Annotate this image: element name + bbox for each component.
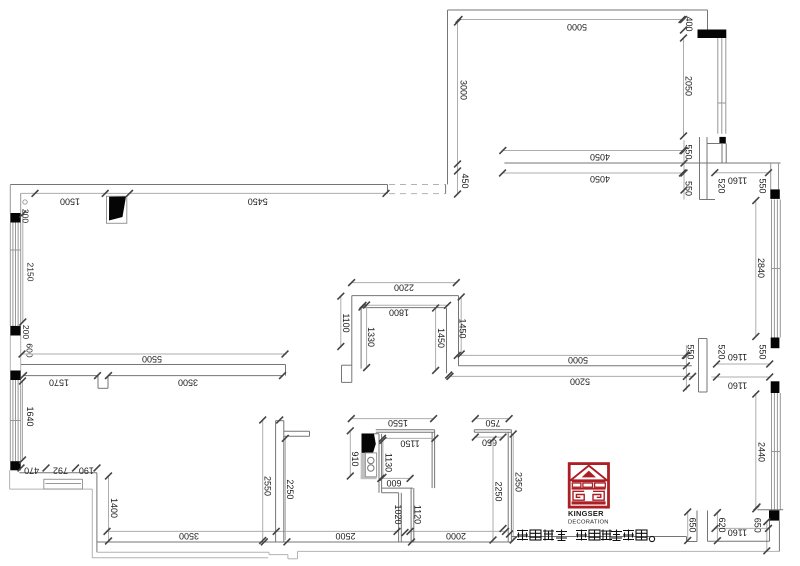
svg-text:620: 620 — [717, 517, 727, 532]
svg-text:’: ’ — [606, 506, 608, 515]
svg-text:1500: 1500 — [60, 197, 80, 207]
svg-text:600: 600 — [25, 343, 35, 357]
svg-text:1100: 1100 — [341, 313, 351, 332]
svg-text:1020: 1020 — [393, 504, 403, 524]
svg-text:2250: 2250 — [285, 479, 295, 499]
svg-text:DECORATION: DECORATION — [568, 519, 609, 525]
svg-text:1570: 1570 — [49, 378, 69, 388]
svg-text:2200: 2200 — [394, 283, 414, 293]
svg-text:5450: 5450 — [248, 197, 268, 207]
svg-text:520: 520 — [717, 344, 727, 359]
svg-text:1160: 1160 — [728, 380, 747, 390]
svg-text:2550: 2550 — [263, 476, 273, 496]
svg-text:650: 650 — [753, 518, 763, 533]
svg-text:4050: 4050 — [590, 174, 610, 184]
svg-text:1130: 1130 — [384, 453, 394, 472]
svg-text:5000: 5000 — [567, 22, 587, 32]
svg-text:200: 200 — [21, 325, 31, 339]
svg-text:400: 400 — [684, 16, 694, 31]
svg-text:650: 650 — [688, 517, 698, 532]
svg-text:5000: 5000 — [568, 355, 588, 365]
svg-text:550: 550 — [758, 344, 768, 359]
svg-text:2250: 2250 — [494, 481, 504, 501]
svg-text:1120: 1120 — [413, 505, 423, 524]
svg-text:3500: 3500 — [179, 531, 199, 541]
svg-text:550: 550 — [684, 144, 694, 159]
svg-text:550: 550 — [686, 344, 696, 359]
svg-text:2050: 2050 — [683, 76, 693, 96]
svg-text:5200: 5200 — [570, 377, 590, 387]
svg-text:550: 550 — [758, 178, 768, 193]
svg-text:2000: 2000 — [446, 531, 466, 541]
svg-text:1640: 1640 — [25, 406, 35, 426]
svg-text:520: 520 — [717, 178, 727, 193]
svg-text:450: 450 — [460, 173, 470, 188]
svg-text:1800: 1800 — [389, 308, 409, 318]
svg-text:1160: 1160 — [728, 176, 747, 186]
svg-text:1160: 1160 — [728, 352, 747, 362]
svg-text:470: 470 — [24, 466, 39, 476]
svg-text:1450: 1450 — [457, 318, 467, 338]
svg-text:750: 750 — [485, 418, 500, 428]
svg-text:5500: 5500 — [142, 354, 162, 364]
svg-text:3000: 3000 — [459, 80, 469, 100]
svg-text:1160: 1160 — [728, 528, 747, 538]
svg-text:KINGSER: KINGSER — [568, 509, 604, 518]
svg-text:2840: 2840 — [756, 258, 766, 278]
svg-text:2350: 2350 — [514, 472, 524, 492]
svg-text:1330: 1330 — [366, 327, 376, 347]
svg-text:4050: 4050 — [590, 152, 610, 162]
svg-text:600: 600 — [386, 478, 401, 488]
svg-text:2150: 2150 — [25, 263, 35, 282]
svg-text:1550: 1550 — [388, 418, 408, 428]
svg-text:910: 910 — [350, 451, 360, 466]
svg-text:2500: 2500 — [335, 531, 355, 541]
svg-text:792: 792 — [53, 466, 68, 476]
svg-text:1400: 1400 — [109, 498, 119, 518]
svg-text:190: 190 — [79, 466, 94, 476]
svg-text:1150: 1150 — [400, 439, 419, 449]
svg-text:2440: 2440 — [757, 442, 767, 462]
svg-text:1450: 1450 — [436, 328, 446, 348]
svg-text:3500: 3500 — [178, 378, 198, 388]
